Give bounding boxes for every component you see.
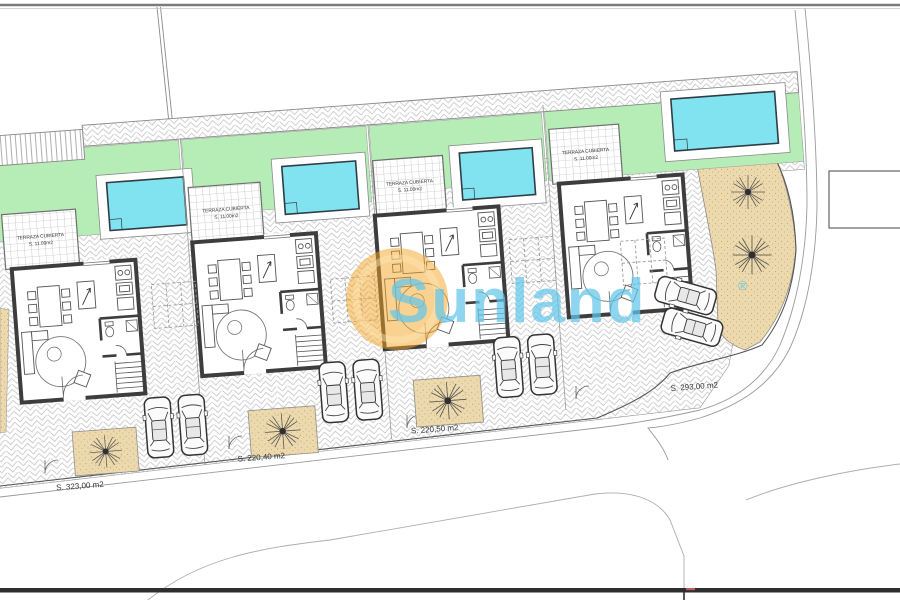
street-edge-b [148,493,684,600]
street-edge-c [746,464,900,500]
terrace-1: TERRAZA CUBIERTA S. 11.00m2 [2,209,80,269]
page-border-bottom [0,588,900,593]
pool-area-4 [660,83,790,162]
plot-area-label-1: S. 323,00 m2 [56,480,105,493]
terrace-2: TERRAZA CUBIERTA S. 11.00m2 [188,182,264,242]
adjacent-building-outline [829,171,900,228]
pool-area-1 [96,168,197,239]
site-plan-canvas: TERRAZA CUBIERTA S. 11.00m2 TERRAZA CUBI… [0,0,900,600]
entry-steps [0,129,85,165]
terrace-4: TERRAZA CUBIERTA S. 11.00m2 [549,124,623,184]
watermark-registered-icon: ® [738,278,748,293]
pool-2 [282,161,359,214]
watermark-text: Sunland [388,267,647,336]
pool-1 [107,177,187,231]
border-red-mark [686,588,695,590]
villa-2 [192,231,326,378]
terrace-3: TERRAZA CUBIERTA S. 11.00m2 [373,155,447,215]
pool-area-3 [449,139,547,210]
villa-1 [12,257,146,404]
pool-area-2 [271,152,370,223]
site-plan-svg: TERRAZA CUBIERTA S. 11.00m2 TERRAZA CUBI… [0,0,900,600]
parcel-boundary-line [157,7,173,123]
pool-3 [459,148,535,200]
